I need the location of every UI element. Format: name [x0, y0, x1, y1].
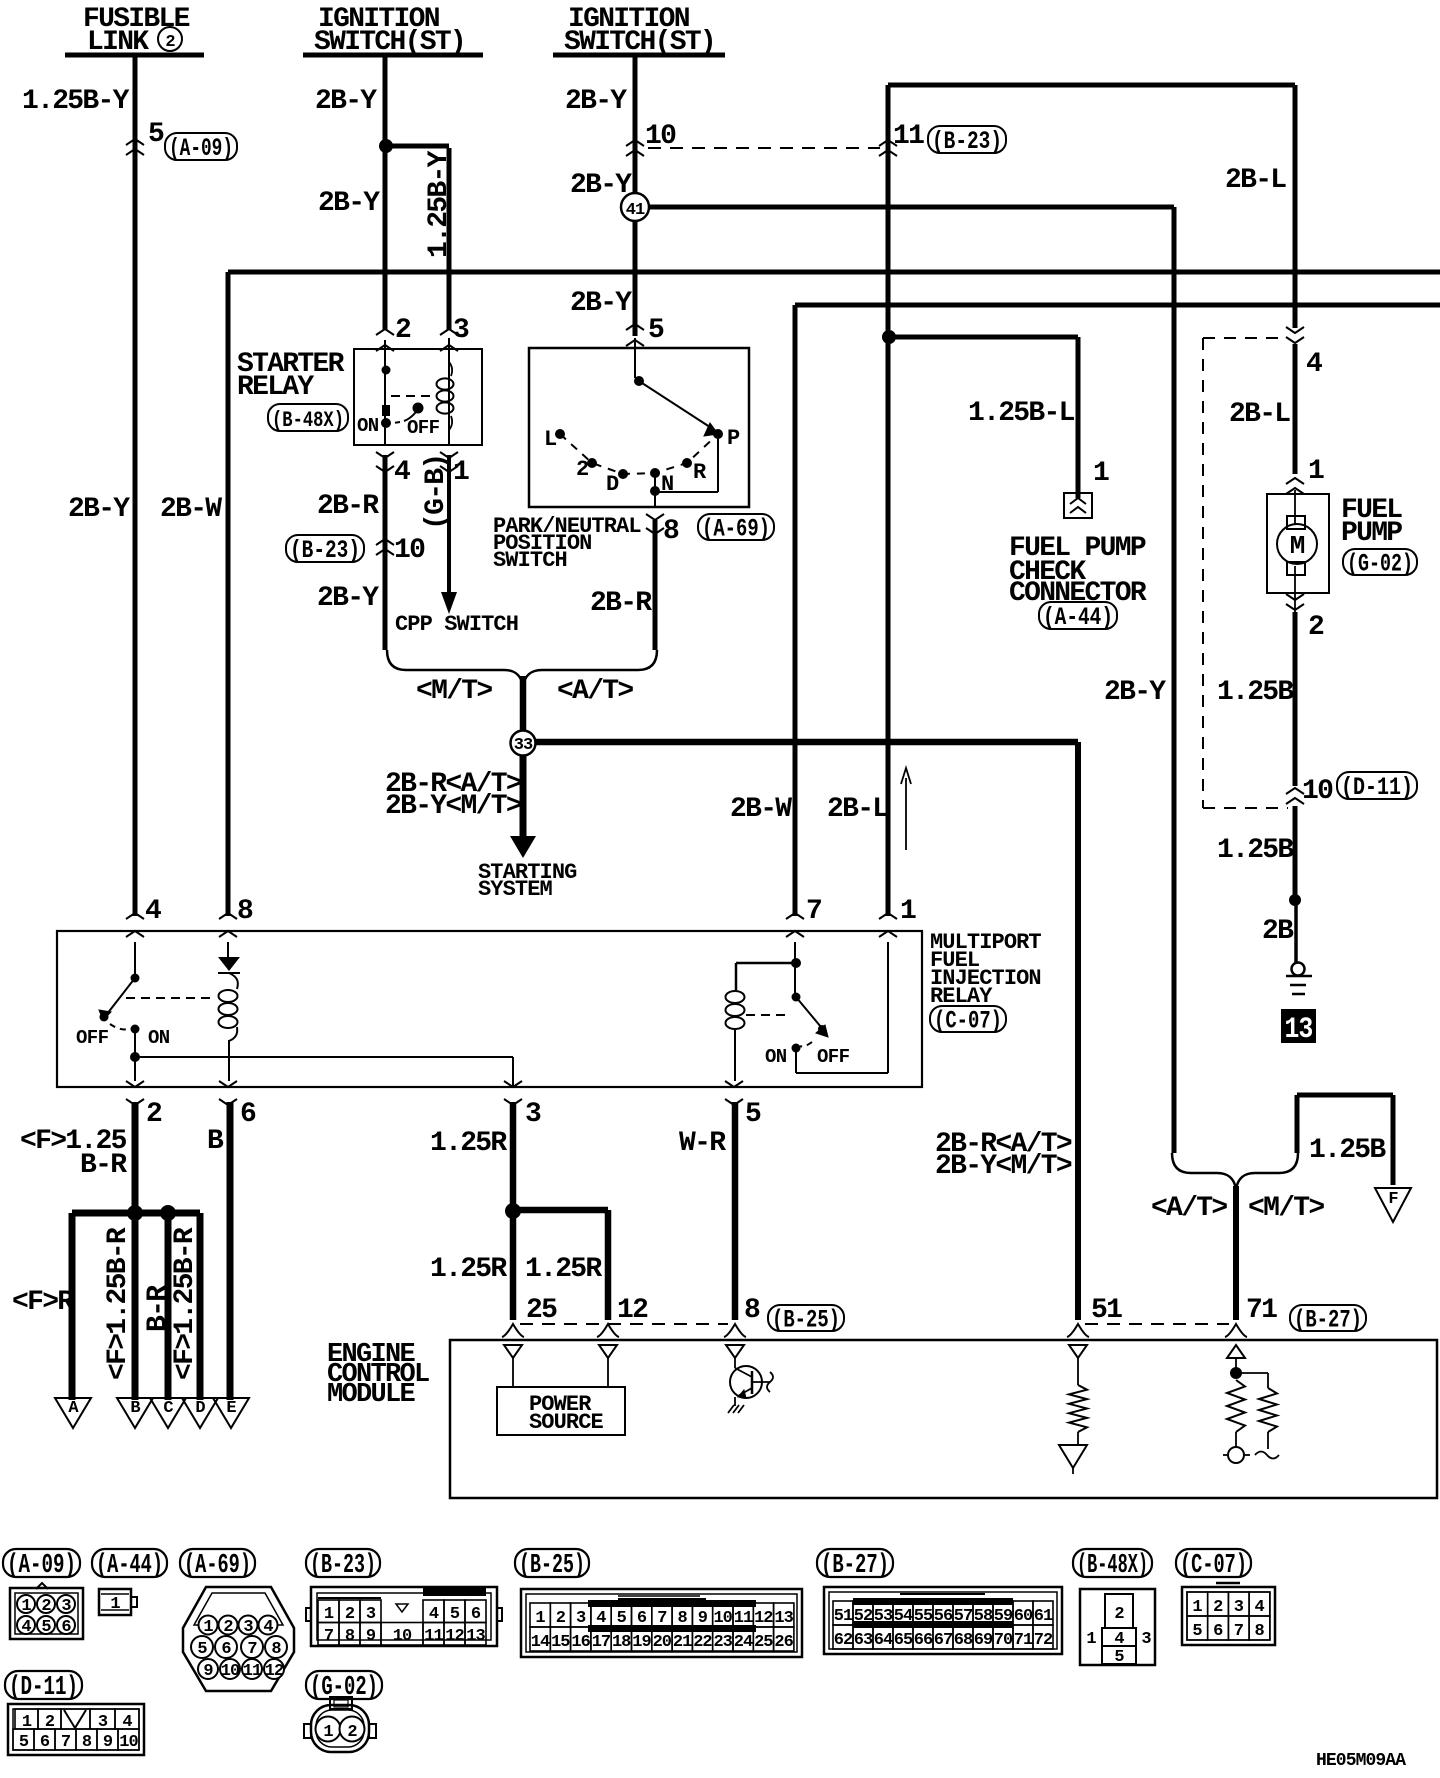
svg-text:(B-48X): (B-48X) [1077, 1551, 1148, 1581]
svg-text:54: 54 [894, 1607, 913, 1626]
svg-text:(A-69): (A-69) [702, 515, 770, 544]
svg-text:(A-69): (A-69) [184, 1551, 251, 1581]
svg-text:(B-25): (B-25) [772, 1306, 840, 1335]
svg-text:62: 62 [834, 1631, 853, 1650]
svg-text:10: 10 [1302, 776, 1333, 807]
svg-text:1: 1 [535, 1609, 545, 1628]
svg-text:2B-L: 2B-L [827, 794, 888, 825]
svg-text:7: 7 [657, 1609, 667, 1628]
svg-text:(B-27): (B-27) [821, 1551, 889, 1581]
svg-text:2B-Y<M/T>: 2B-Y<M/T> [385, 791, 522, 822]
svg-text:12: 12 [265, 1662, 284, 1681]
svg-text:(B-27): (B-27) [1294, 1306, 1362, 1335]
svg-text:(D-11): (D-11) [9, 1673, 78, 1703]
svg-text:(G-02): (G-02) [1347, 550, 1413, 579]
svg-text:2: 2 [345, 1605, 355, 1624]
svg-text:CPP SWITCH: CPP SWITCH [395, 612, 518, 637]
svg-text:11: 11 [424, 1627, 443, 1646]
svg-text:2: 2 [347, 1723, 357, 1742]
svg-text:2B-L: 2B-L [1229, 399, 1290, 430]
svg-text:2B-Y: 2B-Y [318, 188, 380, 219]
svg-text:71: 71 [1014, 1631, 1033, 1650]
svg-text:6: 6 [471, 1605, 481, 1624]
svg-text:10: 10 [394, 535, 425, 566]
svg-text:14: 14 [531, 1633, 550, 1652]
svg-text:5: 5 [1114, 1648, 1124, 1667]
svg-text:61: 61 [1034, 1607, 1053, 1626]
svg-text:6: 6 [40, 1733, 50, 1752]
svg-text:2: 2 [576, 457, 588, 482]
svg-text:13: 13 [1285, 1013, 1313, 1047]
svg-text:(D-11): (D-11) [1341, 773, 1413, 802]
svg-text:1.25B-Y: 1.25B-Y [424, 150, 455, 258]
svg-text:10: 10 [119, 1733, 138, 1752]
svg-text:3: 3 [61, 1597, 71, 1616]
svg-text:9: 9 [366, 1627, 376, 1646]
svg-text:4: 4 [1254, 1598, 1264, 1617]
svg-text:1: 1 [1308, 456, 1324, 487]
svg-text:(B-48X): (B-48X) [272, 408, 344, 433]
svg-text:M: M [1290, 531, 1305, 561]
svg-text:2B-Y<M/T>: 2B-Y<M/T> [935, 1151, 1072, 1182]
svg-text:6: 6 [1213, 1622, 1223, 1641]
svg-text:R: R [693, 460, 707, 485]
svg-text:SWITCH(ST): SWITCH(ST) [314, 27, 465, 58]
svg-text:4: 4 [394, 457, 410, 488]
svg-text:5: 5 [745, 1099, 761, 1130]
svg-text:25: 25 [754, 1633, 773, 1652]
svg-text:SOURCE: SOURCE [529, 1410, 604, 1435]
svg-text:8: 8 [677, 1609, 687, 1628]
svg-text:(C-07): (C-07) [1180, 1551, 1247, 1581]
svg-text:(B-23): (B-23) [290, 536, 360, 565]
svg-text:MODULE: MODULE [327, 1380, 416, 1410]
svg-text:10: 10 [221, 1662, 240, 1681]
svg-text:11: 11 [243, 1662, 262, 1681]
svg-text:12: 12 [445, 1627, 464, 1646]
svg-text:2B-Y: 2B-Y [565, 86, 627, 117]
svg-text:65: 65 [894, 1631, 913, 1650]
svg-text:E: E [226, 1399, 236, 1418]
svg-text:10: 10 [713, 1609, 732, 1628]
svg-text:6: 6 [240, 1099, 256, 1130]
svg-text:66: 66 [914, 1631, 933, 1650]
svg-text:1: 1 [324, 1605, 334, 1624]
svg-text:13: 13 [774, 1609, 793, 1628]
svg-text:P: P [727, 426, 740, 451]
svg-text:W-R: W-R [679, 1128, 726, 1159]
svg-text:1.25B: 1.25B [1309, 1135, 1386, 1166]
svg-text:SWITCH(ST): SWITCH(ST) [564, 27, 715, 58]
svg-text:1.25R: 1.25R [525, 1254, 602, 1285]
svg-text:1.25B: 1.25B [1217, 677, 1294, 708]
svg-text:1: 1 [1093, 458, 1109, 489]
svg-text:1: 1 [1192, 1598, 1202, 1617]
svg-text:2B-Y: 2B-Y [570, 288, 632, 319]
svg-text:6: 6 [221, 1640, 231, 1659]
svg-text:D: D [195, 1399, 205, 1418]
svg-text:17: 17 [592, 1633, 611, 1652]
svg-text:<F>1.25B-R: <F>1.25B-R [170, 1227, 201, 1380]
svg-text:2: 2 [223, 1618, 233, 1637]
svg-text:69: 69 [974, 1631, 993, 1650]
svg-text:(G-02): (G-02) [310, 1673, 378, 1703]
svg-text:5: 5 [1192, 1622, 1202, 1641]
svg-text:4: 4 [429, 1605, 439, 1624]
svg-text:2B-R: 2B-R [590, 588, 652, 619]
svg-text:C: C [163, 1399, 173, 1418]
svg-text:LINK: LINK [87, 27, 149, 58]
svg-text:2B-W: 2B-W [160, 494, 222, 525]
svg-text:51: 51 [1091, 1295, 1122, 1326]
svg-text:5: 5 [41, 1618, 51, 1637]
svg-text:2B-Y: 2B-Y [315, 86, 377, 117]
svg-text:1: 1 [1086, 1630, 1096, 1649]
svg-text:15: 15 [551, 1633, 570, 1652]
svg-text:22: 22 [693, 1633, 712, 1652]
svg-text:12: 12 [754, 1609, 773, 1628]
svg-text:10: 10 [393, 1627, 412, 1646]
svg-text:2B-W: 2B-W [730, 794, 792, 825]
svg-text:<F>R: <F>R [12, 1287, 74, 1318]
svg-text:OFF: OFF [76, 1027, 109, 1049]
svg-text:B-R: B-R [80, 1150, 127, 1181]
svg-text:<A/T>: <A/T> [1151, 1193, 1227, 1224]
svg-text:11: 11 [734, 1609, 753, 1628]
svg-text:2: 2 [395, 315, 411, 346]
svg-text:16: 16 [571, 1633, 590, 1652]
svg-text:57: 57 [954, 1607, 973, 1626]
svg-text:4: 4 [596, 1609, 606, 1628]
svg-text:<F>1.25B-R: <F>1.25B-R [103, 1227, 134, 1380]
svg-text:2B-R: 2B-R [317, 491, 379, 522]
svg-text:(A-44): (A-44) [96, 1551, 163, 1581]
svg-text:53: 53 [874, 1607, 893, 1626]
svg-text:18: 18 [612, 1633, 631, 1652]
svg-text:B: B [207, 1126, 224, 1157]
svg-text:7: 7 [247, 1640, 257, 1659]
svg-text:51: 51 [834, 1607, 853, 1626]
svg-text:56: 56 [934, 1607, 953, 1626]
svg-text:5: 5 [617, 1609, 627, 1628]
svg-text:4: 4 [263, 1618, 273, 1637]
svg-text:(B-23): (B-23) [310, 1551, 376, 1581]
svg-text:SYSTEM: SYSTEM [478, 877, 553, 902]
svg-text:ON: ON [148, 1027, 170, 1049]
svg-text:B: B [130, 1399, 140, 1418]
svg-text:63: 63 [854, 1631, 873, 1650]
svg-text:2B-Y: 2B-Y [68, 494, 130, 525]
svg-text:6: 6 [637, 1609, 647, 1628]
svg-text:1: 1 [453, 457, 469, 488]
svg-text:71: 71 [1246, 1295, 1277, 1326]
svg-text:5: 5 [148, 119, 164, 150]
svg-text:9: 9 [103, 1733, 113, 1752]
svg-text:23: 23 [713, 1633, 732, 1652]
svg-text:3: 3 [576, 1609, 586, 1628]
svg-text:7: 7 [324, 1627, 334, 1646]
svg-text:5: 5 [197, 1640, 207, 1659]
svg-text:7: 7 [1234, 1622, 1244, 1641]
svg-text:58: 58 [974, 1607, 993, 1626]
svg-text:21: 21 [673, 1633, 692, 1652]
svg-text:<M/T>: <M/T> [1248, 1193, 1324, 1224]
svg-text:68: 68 [954, 1631, 973, 1650]
svg-text:(A-09): (A-09) [7, 1551, 76, 1581]
svg-text:24: 24 [734, 1633, 753, 1652]
svg-text:2B-L: 2B-L [1225, 165, 1286, 196]
svg-text:PUMP: PUMP [1341, 518, 1402, 549]
svg-text:1.25R: 1.25R [430, 1254, 507, 1285]
svg-text:ON: ON [765, 1046, 787, 1068]
svg-text:25: 25 [526, 1295, 557, 1326]
svg-text:11: 11 [893, 121, 924, 152]
svg-text:5: 5 [450, 1605, 460, 1624]
svg-text:3: 3 [453, 315, 469, 346]
svg-text:9: 9 [698, 1609, 708, 1628]
svg-text:(A-09): (A-09) [169, 134, 233, 163]
svg-text:(B-25): (B-25) [519, 1551, 585, 1581]
svg-text:1: 1 [900, 896, 916, 927]
svg-text:72: 72 [1034, 1631, 1053, 1650]
svg-text:2B: 2B [1262, 916, 1294, 947]
svg-text:8: 8 [663, 516, 679, 547]
svg-text:1: 1 [110, 1595, 120, 1614]
svg-text:HE05M09AA: HE05M09AA [1316, 1751, 1406, 1771]
svg-text:SWITCH: SWITCH [493, 548, 567, 573]
svg-text:5: 5 [648, 315, 664, 346]
svg-text:8: 8 [1254, 1622, 1264, 1641]
svg-text:8: 8 [744, 1295, 760, 1326]
svg-text:4: 4 [21, 1618, 31, 1637]
svg-text:2B-Y: 2B-Y [570, 170, 632, 201]
svg-text:2B-Y: 2B-Y [1104, 677, 1166, 708]
svg-text:5: 5 [19, 1733, 29, 1752]
svg-text:20: 20 [653, 1633, 672, 1652]
svg-text:2: 2 [146, 1099, 162, 1130]
svg-text:19: 19 [632, 1633, 651, 1652]
svg-text:7: 7 [806, 896, 821, 927]
svg-text:1.25B: 1.25B [1217, 835, 1294, 866]
svg-text:4: 4 [145, 896, 161, 927]
svg-text:41: 41 [626, 201, 645, 220]
svg-text:64: 64 [874, 1631, 893, 1650]
svg-text:7: 7 [61, 1733, 71, 1752]
svg-text:1.25B-Y: 1.25B-Y [22, 86, 130, 117]
svg-text:2: 2 [165, 33, 175, 52]
svg-text:13: 13 [466, 1627, 485, 1646]
svg-text:9: 9 [203, 1662, 213, 1681]
svg-text:70: 70 [994, 1631, 1013, 1650]
svg-text:3: 3 [525, 1099, 541, 1130]
svg-text:3: 3 [243, 1618, 253, 1637]
svg-text:8: 8 [271, 1640, 281, 1659]
svg-text:67: 67 [934, 1631, 953, 1650]
svg-text:12: 12 [617, 1295, 648, 1326]
svg-text:ON: ON [357, 415, 379, 437]
svg-text:F: F [1388, 1190, 1398, 1209]
svg-text:OFF: OFF [817, 1046, 850, 1068]
svg-text:(B-23): (B-23) [932, 127, 1002, 156]
svg-text:N: N [661, 472, 673, 497]
svg-text:1.25B-L: 1.25B-L [968, 398, 1075, 429]
svg-text:2B-Y: 2B-Y [317, 583, 379, 614]
svg-text:33: 33 [514, 736, 533, 755]
svg-text:2: 2 [41, 1597, 51, 1616]
svg-text:<A/T>: <A/T> [557, 676, 633, 707]
svg-text:L: L [544, 427, 557, 452]
svg-text:6: 6 [61, 1618, 71, 1637]
svg-text:1: 1 [203, 1618, 213, 1637]
svg-text:60: 60 [1014, 1607, 1033, 1626]
svg-text:8: 8 [345, 1627, 355, 1646]
svg-text:4: 4 [1306, 349, 1322, 380]
svg-text:1: 1 [21, 1597, 31, 1616]
svg-text:52: 52 [854, 1607, 873, 1626]
svg-text:1.25R: 1.25R [430, 1128, 507, 1159]
svg-text:55: 55 [914, 1607, 933, 1626]
svg-text:(A-44): (A-44) [1043, 603, 1113, 632]
svg-text:2: 2 [1114, 1605, 1124, 1624]
svg-text:(C-07): (C-07) [934, 1007, 1002, 1036]
svg-text:OFF: OFF [407, 417, 440, 439]
svg-text:1: 1 [323, 1723, 333, 1742]
svg-text:3: 3 [366, 1605, 376, 1624]
svg-text:8: 8 [237, 896, 253, 927]
svg-text:<M/T>: <M/T> [416, 676, 492, 707]
svg-text:2: 2 [1308, 612, 1324, 643]
svg-text:2: 2 [1213, 1598, 1223, 1617]
svg-text:RELAY: RELAY [237, 372, 314, 403]
svg-text:D: D [606, 472, 619, 497]
svg-text:3: 3 [1234, 1598, 1244, 1617]
svg-text:2: 2 [556, 1609, 566, 1628]
svg-text:26: 26 [774, 1633, 793, 1652]
svg-text:8: 8 [82, 1733, 92, 1752]
svg-text:3: 3 [1141, 1630, 1151, 1649]
svg-text:59: 59 [994, 1607, 1013, 1626]
